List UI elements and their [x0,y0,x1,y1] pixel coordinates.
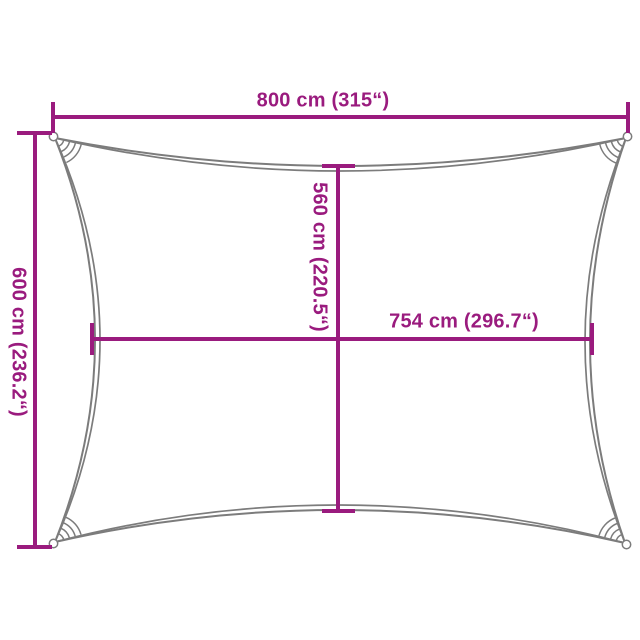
corner-ring-bottom-right [622,540,630,548]
corner-ring-top-right [623,132,631,140]
height-dimension-label: 600 cm (236.2“) [7,267,30,417]
inner-height-dimension-label: 560 cm (220.5“) [308,182,331,332]
inner-width-dimension-label: 754 cm (296.7“) [389,311,539,334]
width-dimension-label: 800 cm (315“) [257,90,390,113]
product-dimension-diagram: 800 cm (315“) 600 cm (236.2“) 560 cm (22… [0,0,640,640]
